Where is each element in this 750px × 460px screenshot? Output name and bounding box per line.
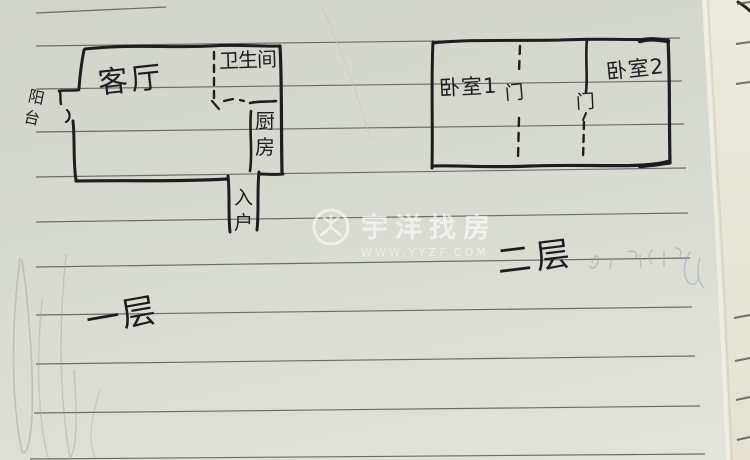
label-living-room: 客厅 bbox=[96, 61, 165, 101]
entry-passage-right bbox=[257, 172, 259, 230]
floor1-left-wall-upper bbox=[79, 50, 84, 88]
label-bathroom: 卫生间 bbox=[219, 48, 277, 72]
under-page-line-stubs bbox=[734, 2, 750, 440]
floor1-bottom-wall bbox=[76, 179, 227, 181]
balcony-notch bbox=[59, 90, 79, 91]
kitchen-top-line bbox=[250, 101, 276, 103]
floor2-partition1 bbox=[519, 46, 520, 72]
label-entry: 入户 bbox=[234, 186, 255, 235]
blue-pencil-mark bbox=[684, 252, 704, 288]
floor1-left-wall-lower bbox=[73, 121, 76, 180]
label-door2: 门 bbox=[575, 92, 595, 114]
label-kitchen: 厨房 bbox=[255, 108, 277, 160]
entry-passage-left bbox=[228, 176, 230, 232]
floor2-right-wall bbox=[668, 40, 670, 162]
page-edge bbox=[704, 0, 750, 460]
label-door1: 门 bbox=[504, 82, 525, 104]
floor2-left-wall bbox=[432, 42, 433, 168]
floor2-partition2 bbox=[586, 39, 587, 92]
floor2-top-wall bbox=[433, 39, 668, 43]
floor1-right-wall bbox=[280, 46, 282, 173]
notebook-photo: 客厅 卫生间 厨房 入户 阳台 卧室1 门 门 卧室2 二层 一层 宇洋找房 W… bbox=[0, 0, 750, 460]
kitchen-partition bbox=[250, 111, 251, 171]
label-bedroom1: 卧室1 bbox=[438, 74, 498, 100]
floor2-bottom-wall bbox=[433, 163, 670, 167]
